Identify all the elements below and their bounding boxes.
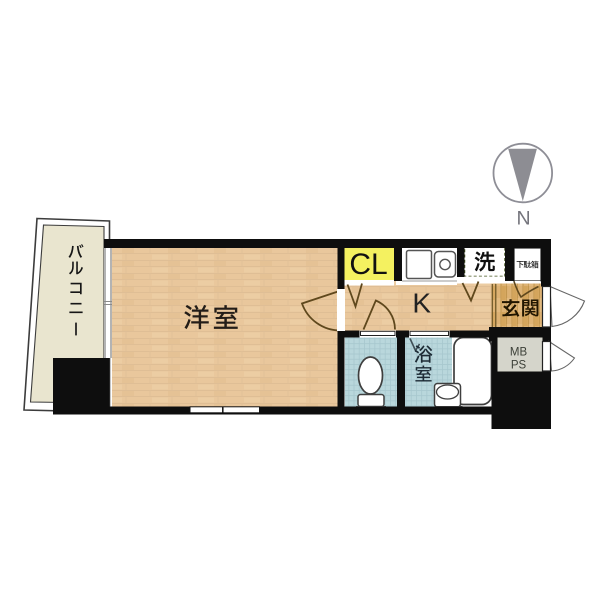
svg-text:K: K: [412, 288, 431, 319]
svg-text:N: N: [516, 208, 530, 230]
svg-text:PS: PS: [511, 360, 527, 372]
svg-text:MB: MB: [510, 347, 528, 359]
svg-text:CL: CL: [349, 248, 387, 281]
